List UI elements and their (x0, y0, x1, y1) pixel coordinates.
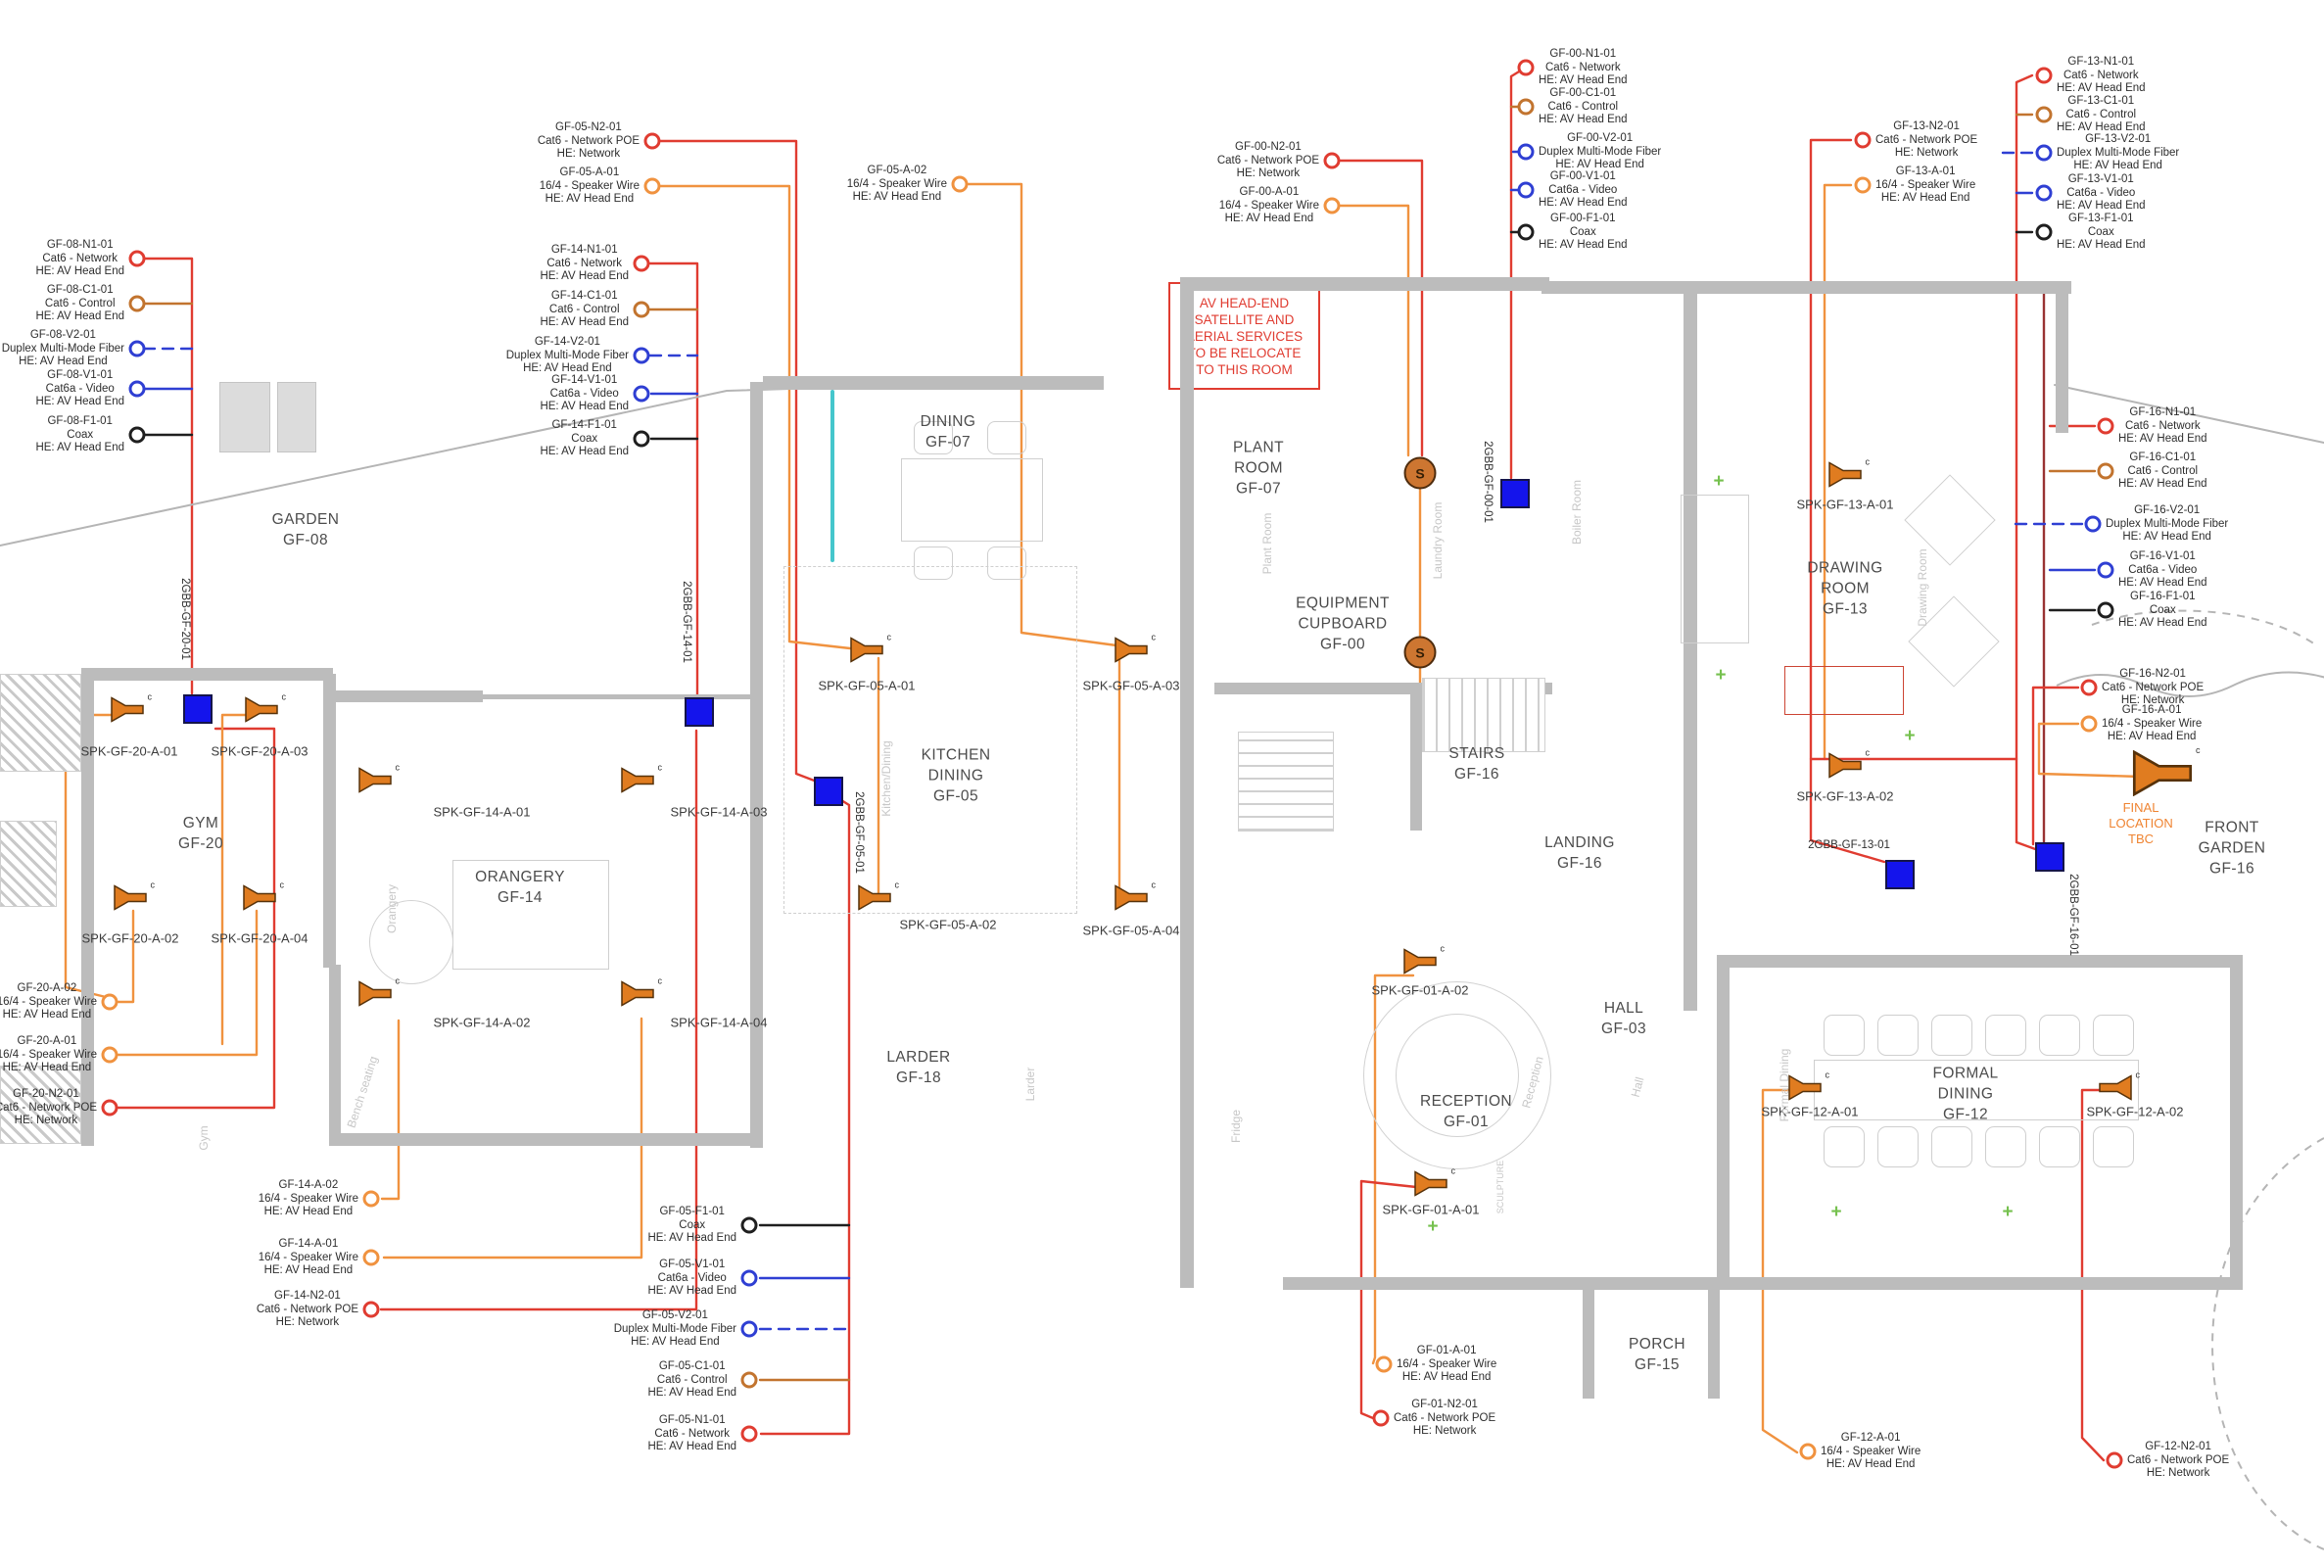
cable-label-line: HE: AV Head End (1539, 74, 1628, 88)
room-label: ORANGERY GF-14 (475, 867, 565, 908)
speaker-label: SPK-GF-05-A-03 (1083, 679, 1180, 693)
room-label: RECEPTION GF-01 (1420, 1091, 1512, 1132)
stairs-pattern (1422, 678, 1545, 752)
cable-label-line: GF-16-N2-01 (2102, 668, 2204, 682)
speaker-circuit-mark: c (1866, 748, 1871, 758)
cable-label-line: GF-14-C1-01 (540, 290, 629, 304)
connector-dot (1855, 132, 1872, 149)
cable-label-line: GF-16-C1-01 (2118, 451, 2207, 465)
cable-label-line: HE: AV Head End (1875, 192, 1975, 206)
connector-dot (129, 381, 146, 398)
cable-label-line: Duplex Multi-Mode Fiber (2057, 146, 2179, 160)
cable-label-line: GF-16-V1-01 (2118, 550, 2207, 564)
cable-label: GF-00-C1-01Cat6 - ControlHE: AV Head End (1539, 87, 1628, 127)
furniture-outline (1985, 1126, 2026, 1167)
wire-polyline (1511, 69, 1524, 478)
connector-dot (102, 994, 119, 1011)
cable-label-line: Cat6 - Network (540, 257, 629, 270)
cable-label: GF-12-N2-01Cat6 - Network POEHE: Network (2127, 1441, 2229, 1481)
connector-dot (129, 296, 146, 312)
wall-segment (1583, 1283, 1594, 1399)
speaker-circuit-mark: c (396, 763, 401, 773)
cable-label-line: Cat6 - Network (2057, 69, 2146, 82)
cable-label-line: 16/4 - Speaker Wire (540, 179, 640, 193)
faint-room-name: SCULPTURE (1495, 1161, 1505, 1214)
cable-label-line: 16/4 - Speaker Wire (2102, 717, 2202, 731)
wall-segment (2056, 281, 2068, 433)
wall-segment (323, 674, 336, 968)
connector-dot (1376, 1356, 1393, 1373)
cable-label-line: Cat6a - Video (2118, 563, 2207, 577)
faint-room-name: Gym (197, 1125, 211, 1150)
cable-label-line: Cat6 - Control (2057, 108, 2146, 121)
speaker-label: SPK-GF-05-A-02 (900, 918, 997, 932)
speaker-label: SPK-GF-01-A-02 (1372, 983, 1469, 998)
green-cross-marker: + (2002, 1202, 2013, 1223)
cable-label-line: Cat6 - Control (35, 297, 124, 310)
wall-segment (1697, 281, 2071, 294)
cable-label-line: GF-05-N2-01 (538, 121, 640, 135)
cable-label-line: Cat6 - Network (35, 252, 124, 265)
cable-label-line: Cat6 - Network POE (1217, 154, 1319, 167)
cable-label-line: GF-05-A-02 (847, 165, 947, 178)
cable-label-line: GF-08-V1-01 (35, 369, 124, 383)
connector-dot (741, 1426, 758, 1443)
panel-label: 2GBB-GF-13-01 (1808, 839, 1890, 851)
speaker-circuit-mark: c (887, 633, 892, 642)
faint-room-name: Larder (1023, 1068, 1037, 1102)
cable-label-line: GF-13-V2-01 (2057, 133, 2179, 147)
wall-segment (763, 376, 1104, 390)
cable-label: GF-13-V2-01Duplex Multi-Mode FiberHE: AV… (2057, 133, 2179, 173)
cable-label: GF-13-F1-01CoaxHE: AV Head End (2057, 213, 2146, 253)
cable-label-line: GF-08-V2-01 (2, 329, 124, 343)
cable-label-line: Cat6 - Network (2118, 419, 2207, 433)
wire-polyline (1763, 1090, 1797, 1452)
cable-label-line: HE: AV Head End (540, 193, 640, 207)
cable-label-line: GF-08-N1-01 (35, 239, 124, 253)
cable-label: GF-00-N2-01Cat6 - Network POEHE: Network (1217, 141, 1319, 181)
connector-dot (1518, 99, 1535, 116)
cable-label-line: Coax (35, 428, 124, 442)
hatched-wall (0, 821, 57, 907)
cable-label-line: GF-20-A-02 (0, 982, 97, 996)
cable-label: GF-08-V1-01Cat6a - VideoHE: AV Head End (35, 369, 124, 409)
cable-label-line: HE: Network (1875, 147, 1977, 161)
cable-label-line: HE: Network (0, 1115, 97, 1128)
cable-label-line: HE: AV Head End (1397, 1371, 1496, 1385)
cable-label-line: HE: AV Head End (0, 1062, 97, 1075)
cable-label: GF-14-N2-01Cat6 - Network POEHE: Network (257, 1290, 358, 1330)
cable-label: GF-14-A-0116/4 - Speaker WireHE: AV Head… (259, 1238, 358, 1278)
wall-segment (336, 690, 483, 702)
cable-label-line: GF-00-N1-01 (1539, 48, 1628, 62)
cable-label-line: HE: AV Head End (0, 1009, 97, 1022)
cable-label: GF-00-N1-01Cat6 - NetworkHE: AV Head End (1539, 48, 1628, 88)
cable-label-line: HE: AV Head End (647, 1441, 736, 1454)
cable-label-line: HE: AV Head End (540, 270, 629, 284)
network-panel-icon (814, 777, 843, 806)
speaker-circuit-mark: c (1152, 633, 1157, 642)
connector-dot (2098, 463, 2114, 480)
speaker-icon: c (358, 768, 392, 798)
cable-label-line: 16/4 - Speaker Wire (0, 995, 97, 1009)
speaker-circuit-mark: c (2196, 745, 2201, 755)
speaker-icon: c (1115, 885, 1148, 916)
cable-label-line: GF-08-C1-01 (35, 284, 124, 298)
cable-label-line: HE: AV Head End (2, 356, 124, 369)
speaker-icon: c (850, 638, 883, 668)
cable-label: GF-13-C1-01Cat6 - ControlHE: AV Head End (2057, 95, 2146, 135)
connector-dot (129, 251, 146, 267)
cable-label-line: HE: AV Head End (2057, 82, 2146, 96)
connector-dot (741, 1372, 758, 1389)
cable-label-line: 16/4 - Speaker Wire (1821, 1445, 1921, 1458)
speaker-circuit-mark: c (2136, 1070, 2141, 1080)
cable-label: GF-20-N2-01Cat6 - Network POEHE: Network (0, 1088, 97, 1128)
connector-dot (1855, 177, 1872, 194)
speaker-circuit-mark: c (895, 880, 900, 890)
hatched-wall (0, 674, 81, 772)
connector-dot (741, 1270, 758, 1287)
cable-label-line: HE: AV Head End (2118, 433, 2207, 447)
cable-label: GF-00-A-0116/4 - Speaker WireHE: AV Head… (1219, 186, 1319, 226)
cable-label-line: GF-14-A-02 (259, 1179, 358, 1193)
connector-dot (634, 302, 650, 318)
cable-label-line: Duplex Multi-Mode Fiber (2, 342, 124, 356)
cable-label-line: GF-00-V1-01 (1539, 170, 1628, 184)
cable-label-line: GF-00-F1-01 (1539, 213, 1628, 226)
cable-label-line: GF-08-F1-01 (35, 415, 124, 429)
speaker-label: SPK-GF-13-A-02 (1797, 789, 1894, 804)
speaker-circuit-mark: c (658, 976, 663, 986)
wire-polyline (222, 715, 248, 1044)
room-label: GARDEN GF-08 (272, 509, 340, 550)
cable-label-line: Cat6 - Network (1539, 61, 1628, 74)
speaker-label: SPK-GF-20-A-03 (212, 744, 308, 759)
connector-dot (2098, 562, 2114, 579)
cable-label: GF-14-F1-01CoaxHE: AV Head End (540, 419, 629, 459)
cable-label-line: GF-12-A-01 (1821, 1432, 1921, 1446)
cable-label-line: GF-20-A-01 (0, 1035, 97, 1049)
cable-label-line: GF-13-F1-01 (2057, 213, 2146, 226)
connector-dot (741, 1217, 758, 1234)
furniture-outline (783, 566, 1077, 914)
furniture-outline (1877, 1015, 1919, 1056)
furniture-outline (1824, 1015, 1865, 1056)
cable-label-line: Cat6a - Video (1539, 183, 1628, 197)
cable-label-line: HE: AV Head End (2102, 731, 2202, 744)
network-panel-icon (685, 697, 714, 727)
speaker-label: SPK-GF-01-A-01 (1383, 1203, 1480, 1217)
connector-dot (1518, 224, 1535, 241)
cable-label-line: 16/4 - Speaker Wire (1875, 178, 1975, 192)
wall-segment (329, 1133, 752, 1146)
cable-label-line: GF-13-N1-01 (2057, 56, 2146, 70)
room-label: GYM GF-20 (178, 813, 223, 854)
final-location-note: FINAL LOCATION TBC (2109, 800, 2173, 847)
panel-label: 2GBB-GF-16-01 (2067, 874, 2079, 956)
wall-segment (1708, 1283, 1720, 1399)
cable-label-line: Coax (2118, 603, 2207, 617)
connector-dot (363, 1250, 380, 1266)
connector-dot (2081, 716, 2098, 733)
cable-label-line: GF-14-N2-01 (257, 1290, 358, 1304)
connector-dot (952, 176, 969, 193)
speaker-circuit-mark: c (280, 880, 285, 890)
cable-label-line: HE: AV Head End (1219, 213, 1319, 226)
cable-label: GF-00-V2-01Duplex Multi-Mode FiberHE: AV… (1539, 132, 1661, 172)
panel-label: 2GBB-GF-14-01 (681, 581, 692, 663)
cable-label-line: HE: AV Head End (647, 1285, 736, 1299)
speaker-icon: c (114, 885, 147, 916)
cable-label: GF-14-V2-01Duplex Multi-Mode FiberHE: AV… (506, 336, 629, 376)
connector-dot (2036, 107, 2053, 123)
cable-label-line: GF-14-V1-01 (540, 374, 629, 388)
panel-label: 2GBB-GF-00-01 (1482, 441, 1494, 523)
furniture-outline (1784, 666, 1904, 715)
wiring-layer (0, 0, 2324, 1568)
speaker-label: SPK-GF-12-A-01 (1762, 1105, 1859, 1119)
wall-segment (1283, 1277, 1726, 1290)
speaker-circuit-mark: c (658, 763, 663, 773)
cable-label-line: 16/4 - Speaker Wire (259, 1251, 358, 1264)
cable-label-line: GF-14-V2-01 (506, 336, 629, 350)
speaker-icon: c (1828, 462, 1862, 493)
furniture-outline (987, 421, 1026, 454)
wall-segment (1724, 955, 2243, 968)
satellite-device-icon: S (1404, 457, 1437, 490)
cable-label-line: Duplex Multi-Mode Fiber (1539, 145, 1661, 159)
furniture-outline (1985, 1015, 2026, 1056)
wall-segment (1717, 955, 1730, 1288)
cable-label-line: HE: AV Head End (259, 1264, 358, 1278)
furniture-outline (2093, 1015, 2134, 1056)
cable-label-line: HE: AV Head End (1539, 197, 1628, 211)
cable-label-line: HE: AV Head End (259, 1206, 358, 1219)
cable-label-line: Cat6 - Control (540, 303, 629, 316)
cable-label-line: Cat6 - Control (647, 1373, 736, 1387)
cable-label: GF-16-N1-01Cat6 - NetworkHE: AV Head End (2118, 406, 2207, 447)
cable-label-line: HE: AV Head End (847, 191, 947, 205)
cable-label-line: HE: AV Head End (614, 1336, 736, 1350)
cable-label-line: Cat6 - Network POE (0, 1101, 97, 1115)
cable-label: GF-05-N1-01Cat6 - NetworkHE: AV Head End (647, 1414, 736, 1454)
connector-dot (634, 256, 650, 272)
connector-dot (2107, 1452, 2123, 1469)
furniture-outline (277, 382, 316, 452)
cable-label: GF-14-N1-01Cat6 - NetworkHE: AV Head End (540, 244, 629, 284)
furniture-outline (219, 382, 270, 452)
speaker-icon: c (621, 981, 654, 1012)
connector-dot (2036, 185, 2053, 202)
speaker-circuit-mark: c (1451, 1166, 1456, 1176)
cable-label-line: HE: AV Head End (35, 442, 124, 455)
cable-label: GF-16-C1-01Cat6 - ControlHE: AV Head End (2118, 451, 2207, 492)
cable-label-line: GF-05-N1-01 (647, 1414, 736, 1428)
cable-label-line: 16/4 - Speaker Wire (847, 177, 947, 191)
furniture-outline (901, 458, 1043, 542)
cable-label-line: HE: Network (1394, 1425, 1495, 1439)
cable-label-line: GF-16-A-01 (2102, 704, 2202, 718)
cable-label: GF-05-V2-01Duplex Multi-Mode FiberHE: AV… (614, 1309, 736, 1350)
cable-label-line: GF-20-N2-01 (0, 1088, 97, 1102)
cable-label: GF-00-V1-01Cat6a - VideoHE: AV Head End (1539, 170, 1628, 211)
cable-label: GF-05-A-0116/4 - Speaker WireHE: AV Head… (540, 166, 640, 207)
speaker-icon: c (1403, 949, 1437, 979)
connector-dot (1324, 153, 1341, 169)
wire-polyline (382, 1021, 399, 1199)
furniture-outline (1931, 1015, 1972, 1056)
cable-label: GF-08-N1-01Cat6 - NetworkHE: AV Head End (35, 239, 124, 279)
wall-segment (1684, 281, 1697, 1011)
speaker-label: SPK-GF-12-A-02 (2087, 1105, 2184, 1119)
cable-label-line: GF-05-C1-01 (647, 1360, 736, 1374)
speaker-icon: c (1115, 638, 1148, 668)
cable-label-line: HE: AV Head End (540, 316, 629, 330)
room-label: LARDER GF-18 (886, 1047, 950, 1088)
connector-dot (741, 1321, 758, 1338)
cable-label-line: GF-14-A-01 (259, 1238, 358, 1252)
speaker-icon: c (358, 981, 392, 1012)
network-panel-icon (2035, 842, 2064, 872)
speaker-circuit-mark: c (151, 880, 156, 890)
connector-dot (1324, 198, 1341, 214)
room-label: FORMAL DINING GF-12 (1933, 1064, 1999, 1125)
speaker-circuit-mark: c (1866, 457, 1871, 467)
wall-segment (750, 382, 763, 1148)
cable-label: GF-05-V1-01Cat6a - VideoHE: AV Head End (647, 1259, 736, 1299)
cable-label-line: HE: Network (538, 148, 640, 162)
cable-label-line: Cat6 - Control (1539, 100, 1628, 114)
cable-label: GF-14-V1-01Cat6a - VideoHE: AV Head End (540, 374, 629, 414)
cable-label-line: GF-13-A-01 (1875, 166, 1975, 179)
speaker-icon: c (2099, 1075, 2132, 1106)
green-cross-marker: + (1830, 1202, 1841, 1223)
cable-label: GF-16-V1-01Cat6a - VideoHE: AV Head End (2118, 550, 2207, 591)
cable-label-line: Duplex Multi-Mode Fiber (614, 1322, 736, 1336)
green-cross-marker: + (1715, 665, 1726, 687)
connector-dot (1518, 144, 1535, 161)
connector-dot (634, 431, 650, 448)
connector-dot (1800, 1444, 1817, 1460)
furniture-outline (1877, 1126, 1919, 1167)
room-label: EQUIPMENT CUPBOARD GF-00 (1296, 594, 1390, 655)
cable-label: GF-08-C1-01Cat6 - ControlHE: AV Head End (35, 284, 124, 324)
cable-label: GF-16-N2-01Cat6 - Network POEHE: Network (2102, 668, 2204, 708)
cable-label: GF-12-A-0116/4 - Speaker WireHE: AV Head… (1821, 1432, 1921, 1472)
speaker-label: SPK-GF-20-A-04 (212, 931, 308, 946)
cable-label: GF-16-V2-01Duplex Multi-Mode FiberHE: AV… (2106, 504, 2228, 545)
cable-label-line: GF-14-F1-01 (540, 419, 629, 433)
wall-segment (1180, 277, 1194, 1288)
cable-label: GF-16-F1-01CoaxHE: AV Head End (2118, 591, 2207, 631)
cable-label-line: HE: AV Head End (647, 1232, 736, 1246)
connector-dot (2098, 602, 2114, 619)
cable-label-line: Coax (1539, 225, 1628, 239)
furniture-outline (1824, 1126, 1865, 1167)
speaker-circuit-mark: c (1441, 944, 1446, 954)
cable-label-line: GF-00-C1-01 (1539, 87, 1628, 101)
connector-dot (644, 133, 661, 150)
wall-segment (478, 694, 757, 699)
connector-dot (2036, 145, 2053, 162)
stairs-pattern (1238, 732, 1334, 832)
cable-label-line: HE: AV Head End (2106, 531, 2228, 545)
cable-label-line: Cat6 - Network POE (1394, 1411, 1495, 1425)
connector-dot (2081, 680, 2098, 696)
speaker-circuit-mark: c (396, 976, 401, 986)
cable-label-line: 16/4 - Speaker Wire (259, 1192, 358, 1206)
network-panel-icon (1885, 860, 1915, 889)
cable-label-line: HE: AV Head End (35, 310, 124, 324)
wall-segment (1724, 1277, 2243, 1290)
network-panel-icon (183, 694, 213, 724)
cable-label-line: HE: AV Head End (2118, 478, 2207, 492)
speaker-label: SPK-GF-05-A-01 (819, 679, 916, 693)
cable-label: GF-08-F1-01CoaxHE: AV Head End (35, 415, 124, 455)
panel-label: 2GBB-GF-20-01 (179, 578, 191, 660)
cable-label-line: GF-00-V2-01 (1539, 132, 1661, 146)
cable-label-line: GF-00-N2-01 (1217, 141, 1319, 155)
cable-label-line: HE: AV Head End (2057, 160, 2179, 173)
furniture-outline (2039, 1015, 2080, 1056)
cable-label-line: HE: AV Head End (35, 265, 124, 279)
cable-label-line: GF-13-V1-01 (2057, 173, 2146, 187)
cable-label: GF-00-F1-01CoaxHE: AV Head End (1539, 213, 1628, 253)
cable-label: GF-14-C1-01Cat6 - ControlHE: AV Head End (540, 290, 629, 330)
cable-label-line: Cat6 - Network POE (538, 134, 640, 148)
connector-dot (102, 1047, 119, 1064)
wire-polyline (119, 729, 274, 1108)
cable-label-line: HE: AV Head End (2118, 617, 2207, 631)
final-location-speaker-icon: c (2133, 750, 2193, 801)
room-label: PORCH GF-15 (1629, 1334, 1685, 1375)
cable-label-line: GF-16-N1-01 (2118, 406, 2207, 420)
cable-label-line: Cat6 - Network (647, 1427, 736, 1441)
connector-dot (2085, 516, 2102, 533)
speaker-icon: c (243, 885, 276, 916)
green-cross-marker: + (1904, 726, 1915, 747)
cable-label-line: HE: AV Head End (540, 401, 629, 414)
speaker-icon: c (245, 697, 278, 728)
satellite-device-icon: S (1404, 637, 1437, 669)
faint-room-name: Orangery (385, 884, 399, 933)
cable-label-line: Coax (540, 432, 629, 446)
cable-label-line: 16/4 - Speaker Wire (1219, 199, 1319, 213)
cable-label: GF-13-N2-01Cat6 - Network POEHE: Network (1875, 120, 1977, 161)
speaker-label: SPK-GF-14-A-02 (434, 1016, 531, 1030)
cable-label-line: Cat6a - Video (35, 382, 124, 396)
speaker-label: SPK-GF-20-A-02 (82, 931, 179, 946)
cable-label-line: Cat6 - Network POE (1875, 133, 1977, 147)
connector-dot (129, 341, 146, 357)
cable-label-line: Coax (647, 1218, 736, 1232)
furniture-outline (2093, 1126, 2134, 1167)
wall-segment (2230, 955, 2243, 1290)
speaker-label: SPK-GF-14-A-03 (671, 805, 768, 820)
connector-dot (363, 1302, 380, 1318)
speaker-icon: c (1828, 753, 1862, 784)
green-cross-marker: + (1713, 471, 1724, 493)
cable-label: GF-05-C1-01Cat6 - ControlHE: AV Head End (647, 1360, 736, 1401)
cable-label-line: GF-14-N1-01 (540, 244, 629, 258)
cable-label-line: Cat6 - Network POE (2102, 681, 2204, 694)
speaker-icon: c (858, 885, 891, 916)
connector-dot (1518, 182, 1535, 199)
cable-label: GF-05-F1-01CoaxHE: AV Head End (647, 1206, 736, 1246)
cable-label-line: Cat6a - Video (540, 387, 629, 401)
